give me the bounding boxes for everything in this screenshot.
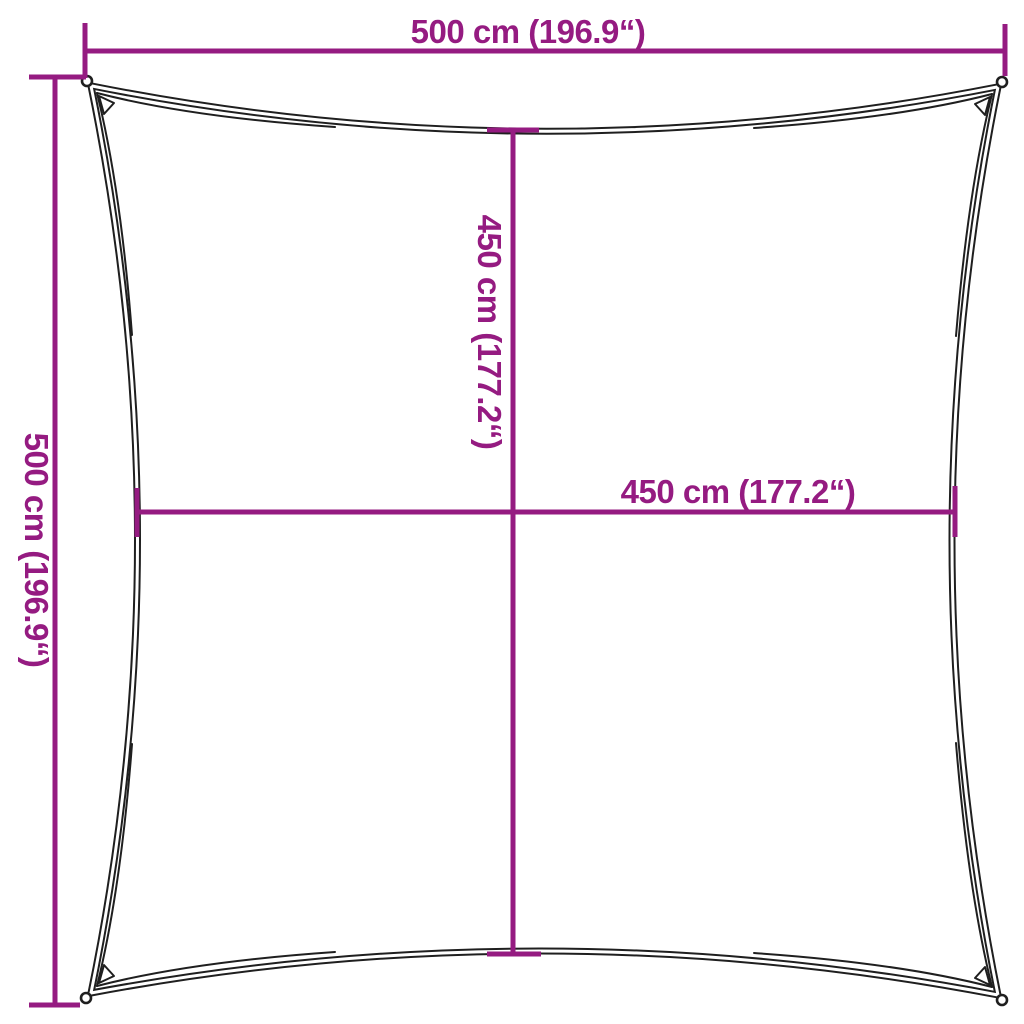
corner-seams — [97, 93, 992, 987]
dimension-left-height: 500 cm (196.9“) — [18, 77, 86, 1005]
product-dimension-diagram: 500 cm (196.9“) 500 cm (196.9“) 450 cm (… — [0, 0, 1024, 1024]
seam-bottom-right-h — [754, 953, 992, 987]
dimension-label-top-width: 500 cm (196.9“) — [411, 13, 646, 50]
grommet-ring-top-right — [997, 77, 1007, 87]
dimension-top-width: 500 cm (196.9“) — [85, 13, 1005, 78]
sail-edge-right-inner — [952, 87, 998, 995]
grommets — [81, 76, 1007, 1005]
grommet-ring-bottom-right — [997, 995, 1007, 1005]
dimension-inner-horizontal: 450 cm (177.2“) — [137, 473, 955, 537]
grommet-ring-bottom-left — [81, 993, 91, 1003]
dimension-label-inner-horizontal: 450 cm (177.2“) — [621, 473, 856, 510]
shade-sail-outline — [91, 86, 998, 995]
dimension-label-left-height: 500 cm (196.9“) — [18, 433, 55, 668]
dimension-inner-vertical: 450 cm (177.2“) — [471, 129, 541, 955]
dimension-label-inner-vertical: 450 cm (177.2“) — [471, 215, 508, 450]
sail-edge-left-inner — [91, 86, 138, 993]
seam-bottom-left-h — [97, 952, 335, 986]
sail-edge-top-inner — [92, 86, 997, 131]
diagram-canvas: 500 cm (196.9“) 500 cm (196.9“) 450 cm (… — [0, 0, 1024, 1024]
